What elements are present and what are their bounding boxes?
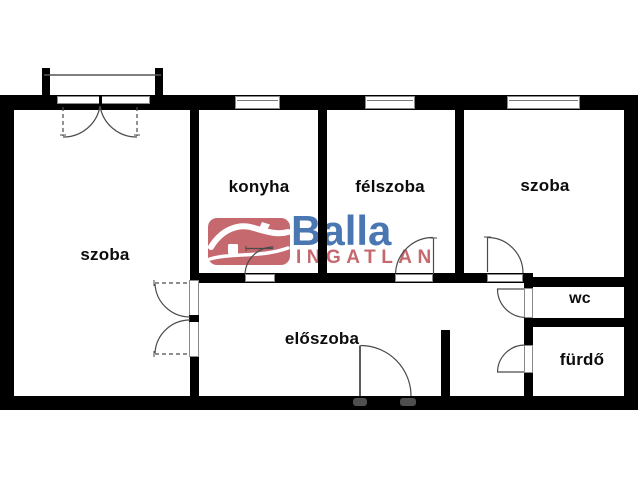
floor-plan: Balla INGATLAN xyxy=(0,0,640,480)
room-label-szoba-right: szoba xyxy=(520,176,569,196)
balcony-door-swing xyxy=(60,106,140,137)
room-label-wc: wc xyxy=(569,290,591,308)
room-label-konyha: konyha xyxy=(229,177,290,197)
konyha-door-swing xyxy=(245,246,274,274)
door-swings-layer xyxy=(0,0,640,480)
room-label-eloszoba: előszoba xyxy=(285,329,359,349)
entrance-door-swing xyxy=(360,346,411,397)
room-label-felszoba: félszoba xyxy=(355,177,425,197)
furdo-door-swing xyxy=(497,345,525,372)
wc-door-swing xyxy=(497,289,525,318)
felszoba-door-swing xyxy=(396,238,438,275)
room-label-szoba-left: szoba xyxy=(80,245,129,265)
szoba-left-double-door-swing xyxy=(154,280,190,357)
room-label-furdo: fürdő xyxy=(560,350,604,370)
szoba-right-door-swing xyxy=(484,237,523,273)
